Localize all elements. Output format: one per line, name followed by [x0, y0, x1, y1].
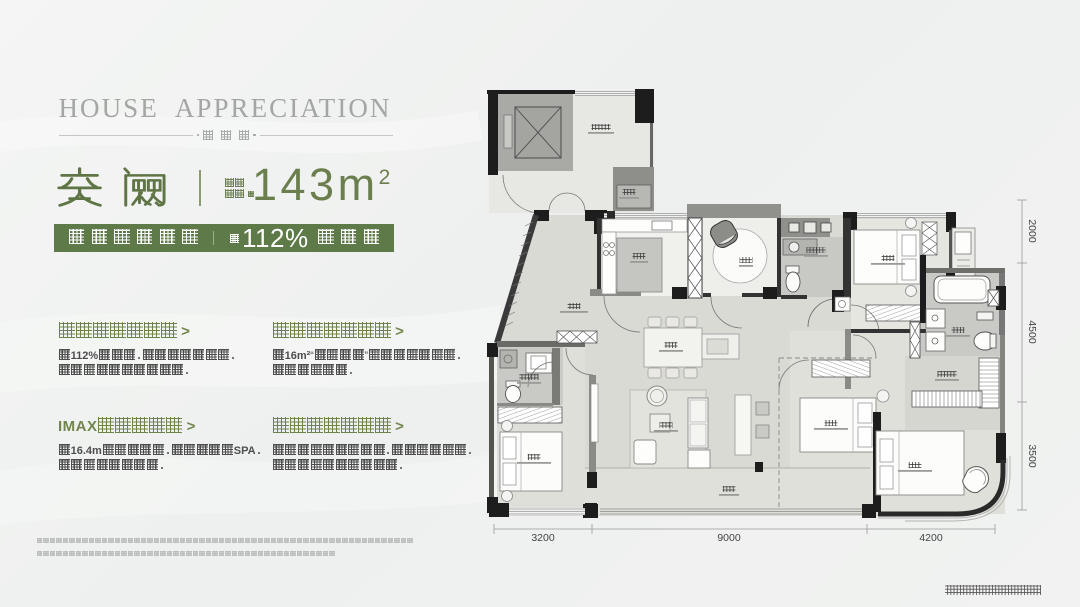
svg-text:2000: 2000: [1026, 219, 1038, 243]
svg-text:3500: 3500: [1026, 444, 1038, 468]
svg-text:9000: 9000: [717, 532, 741, 544]
svg-text:4200: 4200: [919, 532, 943, 544]
svg-text:3200: 3200: [531, 532, 555, 544]
svg-text:4500: 4500: [1026, 320, 1038, 344]
